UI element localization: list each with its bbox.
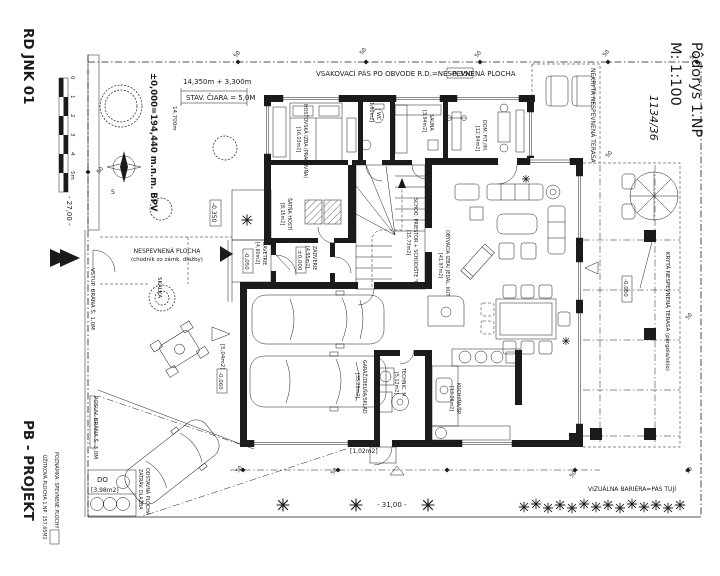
infiltration-note: VSAKOVACÍ PÁS PO OBVODE R.D.=NESPEVNENÁ … bbox=[316, 69, 516, 78]
window-east-2 bbox=[576, 262, 583, 300]
sauna-benches bbox=[395, 105, 441, 153]
compass-south: S bbox=[111, 189, 115, 196]
scale-bar bbox=[59, 78, 68, 192]
setback-mark: 50 bbox=[605, 150, 614, 160]
closet-1 bbox=[305, 200, 322, 224]
window-guest-left bbox=[264, 106, 271, 154]
vehicles bbox=[117, 291, 386, 512]
room-fitness-name: DOM. FIT./IM. bbox=[481, 120, 487, 151]
stair-direction-arrow bbox=[398, 178, 406, 188]
parked-car bbox=[117, 412, 227, 513]
compass-icon bbox=[107, 151, 141, 183]
room-staircase-area: [15,73m2] bbox=[405, 230, 411, 255]
bins-area-label: [3,98m2] bbox=[91, 487, 119, 494]
level-terrace: -0,050 bbox=[622, 279, 628, 297]
room-staircase-name: SCHOD. PRIESTOR + SCHODIŠTE "L" bbox=[412, 198, 419, 286]
scale-tick: 3 bbox=[69, 133, 75, 137]
room-living-name: OBÝVACIA IZBA/ JEDÁL. KÚT bbox=[444, 230, 451, 296]
tv-stand bbox=[461, 244, 495, 279]
window-fitness-right bbox=[527, 112, 534, 156]
closet-2 bbox=[324, 200, 341, 224]
scale-tick: 4 bbox=[69, 152, 75, 156]
project-code: RD JNK 01 bbox=[20, 28, 36, 105]
dim-side-offset: 14,700m bbox=[171, 106, 177, 131]
window-east-3 bbox=[576, 313, 583, 424]
floor-plan-page: RD JNK 01 PB - PROJEKT Pôdorys 1.NP M: 1… bbox=[0, 0, 720, 576]
setback-mark: 50 bbox=[474, 50, 483, 60]
bush-icon bbox=[213, 136, 237, 160]
walkway-label-1: NESPEVNENÁ PLOCHA bbox=[134, 248, 202, 255]
room-porch-area: [4,60m2] bbox=[254, 242, 260, 264]
setback-mark: 50 bbox=[685, 466, 694, 476]
covered-terrace-label: KRYTÁ NESPEVNENÁ TERASA (pergola/sklo) bbox=[664, 252, 671, 371]
level-leader bbox=[640, 242, 652, 288]
driveway-dashes bbox=[98, 396, 346, 517]
scale-tick: 1 bbox=[69, 95, 75, 99]
usable-area-note: ÚŽITKOVÁ PLOCHA 1.NP: 157,65M2 bbox=[41, 455, 49, 540]
quad-bike bbox=[150, 321, 209, 378]
rock-garden-label: SKALKA bbox=[156, 277, 162, 298]
sliding-gate-label: POSUV. BRÁNA Š. 3,0M bbox=[92, 396, 99, 459]
room-wardrobe-name: ŠATŇA HOSTÍ bbox=[286, 198, 293, 231]
parking-label-2: ZATRÁV. DLAŽBA bbox=[137, 469, 145, 510]
setback-mark: 50 bbox=[96, 166, 105, 176]
wc-door bbox=[366, 165, 382, 181]
window-guest-top bbox=[283, 95, 339, 102]
scale-tick: 2 bbox=[69, 114, 75, 118]
room-sauna-area: [3,94m2] bbox=[421, 110, 427, 132]
setback-mark: 50 bbox=[235, 465, 244, 475]
window-fitness-top bbox=[457, 95, 519, 102]
room-guest-area: [16,03m2] bbox=[295, 127, 301, 152]
window-sauna-top bbox=[396, 95, 440, 102]
back-pad-area: [1,02m2] bbox=[350, 448, 378, 455]
entrance-arrow-icon bbox=[220, 246, 233, 262]
entrance-door bbox=[276, 255, 296, 275]
dim-building-line: STAV. ČIARA = 5,0M bbox=[186, 93, 255, 102]
room-vestibule-name: ZÁDVERIE bbox=[311, 246, 318, 270]
room-kitchen-name: KUCHYŇA/ŠP. bbox=[455, 383, 462, 415]
corner-desk bbox=[428, 296, 464, 326]
author: PB - PROJEKT bbox=[20, 420, 36, 522]
drawing-scale: M: 1:100 bbox=[667, 42, 683, 106]
floor-plan-drawing: RD JNK 01 PB - PROJEKT Pôdorys 1.NP M: 1… bbox=[0, 0, 720, 576]
sofa-set bbox=[455, 184, 565, 259]
room-living-area: [41,97m2] bbox=[437, 253, 443, 278]
dining-chairs bbox=[481, 285, 570, 354]
room-kitchen-area: [13,28m2] bbox=[448, 386, 454, 411]
main-entry-arrow-icon bbox=[50, 249, 80, 267]
level-driveway: -0,060 bbox=[217, 372, 223, 390]
kitchen-island bbox=[452, 349, 520, 366]
entry-gate-arc bbox=[93, 250, 115, 272]
room-porch-name: ZÁVETRIE bbox=[261, 242, 268, 265]
vestibule-door bbox=[335, 257, 351, 273]
dim-plot-width: - 31,00 - bbox=[377, 501, 407, 509]
level-terrain-left: -0,350 bbox=[210, 203, 217, 223]
technical-door bbox=[400, 350, 414, 364]
driveway-edge bbox=[98, 390, 246, 446]
hedge-note: VIZUÁLNA BARIÉRA=PÁS TUJÍ bbox=[588, 485, 676, 493]
kitchen-counter bbox=[432, 366, 510, 440]
parcel-number: 1134/36 bbox=[647, 95, 660, 141]
dim-top-chain: 14,350m + 3,300m bbox=[183, 78, 252, 86]
scale-tick: 5m bbox=[69, 171, 75, 180]
room-garage-area: [35,28m2] bbox=[354, 373, 360, 398]
setback-mark: 50 bbox=[233, 50, 242, 60]
level-entry: ±0,000 bbox=[296, 250, 302, 271]
bins-label: DO bbox=[97, 476, 108, 484]
entry-gate-label: VSTUP. BRÁNA Š. 1,0M bbox=[89, 268, 96, 330]
drive-pad-area: [5,04m2] bbox=[219, 344, 225, 369]
bottom-shrubs bbox=[277, 499, 435, 512]
window-living-top bbox=[530, 158, 570, 165]
guest-wardrobe bbox=[273, 107, 286, 157]
parking-label-1: ODSTAVNÁ PLOCHA bbox=[144, 468, 151, 516]
note-hatch-swatch bbox=[50, 530, 59, 544]
dining-table bbox=[496, 299, 556, 339]
paved-note: POZNÁMKA: SPEVNENÉ PLOCHY bbox=[53, 452, 61, 529]
setback-mark: 50 bbox=[685, 312, 694, 322]
boundary-strip bbox=[88, 55, 99, 230]
room-garage-name: GARÁŽ/DIELŇA/SKLAD bbox=[361, 360, 369, 414]
walkway-label-2: (chodník zo zámk. dlažby) bbox=[131, 256, 203, 263]
sauna-door bbox=[412, 165, 426, 179]
setback-mark: 50 bbox=[359, 47, 368, 57]
setback-mark: 50 bbox=[569, 470, 578, 480]
garden-table bbox=[622, 172, 678, 220]
scale-tick: 0 bbox=[69, 76, 75, 80]
room-wc-area: [1,50m2] bbox=[368, 100, 374, 122]
level-porch: -0,050 bbox=[243, 252, 249, 270]
dim-plot-depth: - 27,00 - bbox=[65, 196, 73, 226]
room-vestibule-area: [4,95m2] bbox=[304, 246, 310, 268]
room-technical-area: [5,12m2] bbox=[393, 372, 399, 394]
room-wc-name: WC bbox=[375, 112, 381, 121]
wardrobe-door bbox=[318, 227, 334, 243]
porch-steps bbox=[228, 240, 232, 302]
garage-door bbox=[254, 440, 348, 447]
window-east-1 bbox=[576, 176, 583, 238]
uncovered-terrace-label: NEKRYTÁ NESPEVNENÁ TERASA bbox=[589, 68, 596, 164]
tree-icon bbox=[100, 85, 142, 127]
datum-note: ±0,000=194,440 m.n.m. BPV bbox=[148, 73, 158, 212]
room-wardrobe-area: [8,15m2] bbox=[279, 203, 285, 225]
window-kitchen-south bbox=[462, 440, 512, 447]
setback-mark: 50 bbox=[602, 49, 611, 59]
room-fitness-area: [12,84m2] bbox=[474, 126, 480, 151]
garage-car-1 bbox=[252, 291, 384, 348]
garage-door-int bbox=[358, 289, 374, 305]
room-sauna-name: SAUNA bbox=[428, 114, 434, 132]
hedge-row bbox=[519, 499, 685, 513]
fitness-door bbox=[498, 165, 517, 184]
guest-shelf bbox=[347, 118, 356, 152]
room-technical-name: TECHNIC. M. bbox=[400, 367, 406, 398]
room-guest-name: HOSŤOVSKÁ IZBA (PRACOVŇA) bbox=[302, 104, 310, 178]
terrace-chairs bbox=[546, 76, 594, 106]
